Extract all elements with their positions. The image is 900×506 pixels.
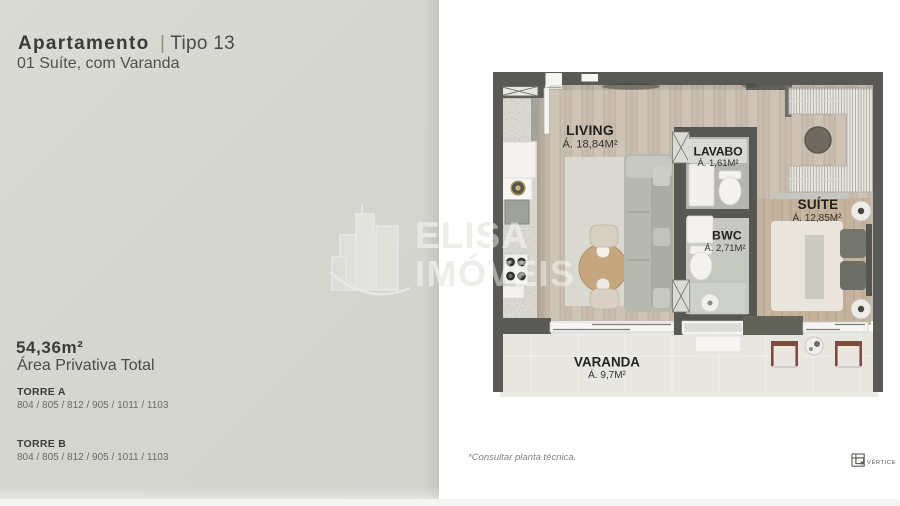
svg-text:LIVING: LIVING [566, 122, 614, 138]
svg-text:VÉRTICE: VÉRTICE [867, 459, 896, 466]
svg-text:Á. 1,61M²: Á. 1,61M² [697, 158, 738, 169]
svg-text:LAVABO: LAVABO [694, 145, 744, 159]
svg-text:Á. 12,85M²: Á. 12,85M² [793, 211, 843, 224]
svg-text:VARANDA: VARANDA [574, 355, 640, 370]
svg-text:Á. 18,84M²: Á. 18,84M² [562, 138, 617, 151]
svg-text:Á. 2,71M²: Á. 2,71M² [704, 243, 745, 254]
svg-text:SUÍTE: SUÍTE [798, 197, 839, 212]
svg-text:Á. 9,7M²: Á. 9,7M² [588, 368, 626, 381]
svg-text:BWC: BWC [712, 229, 742, 243]
